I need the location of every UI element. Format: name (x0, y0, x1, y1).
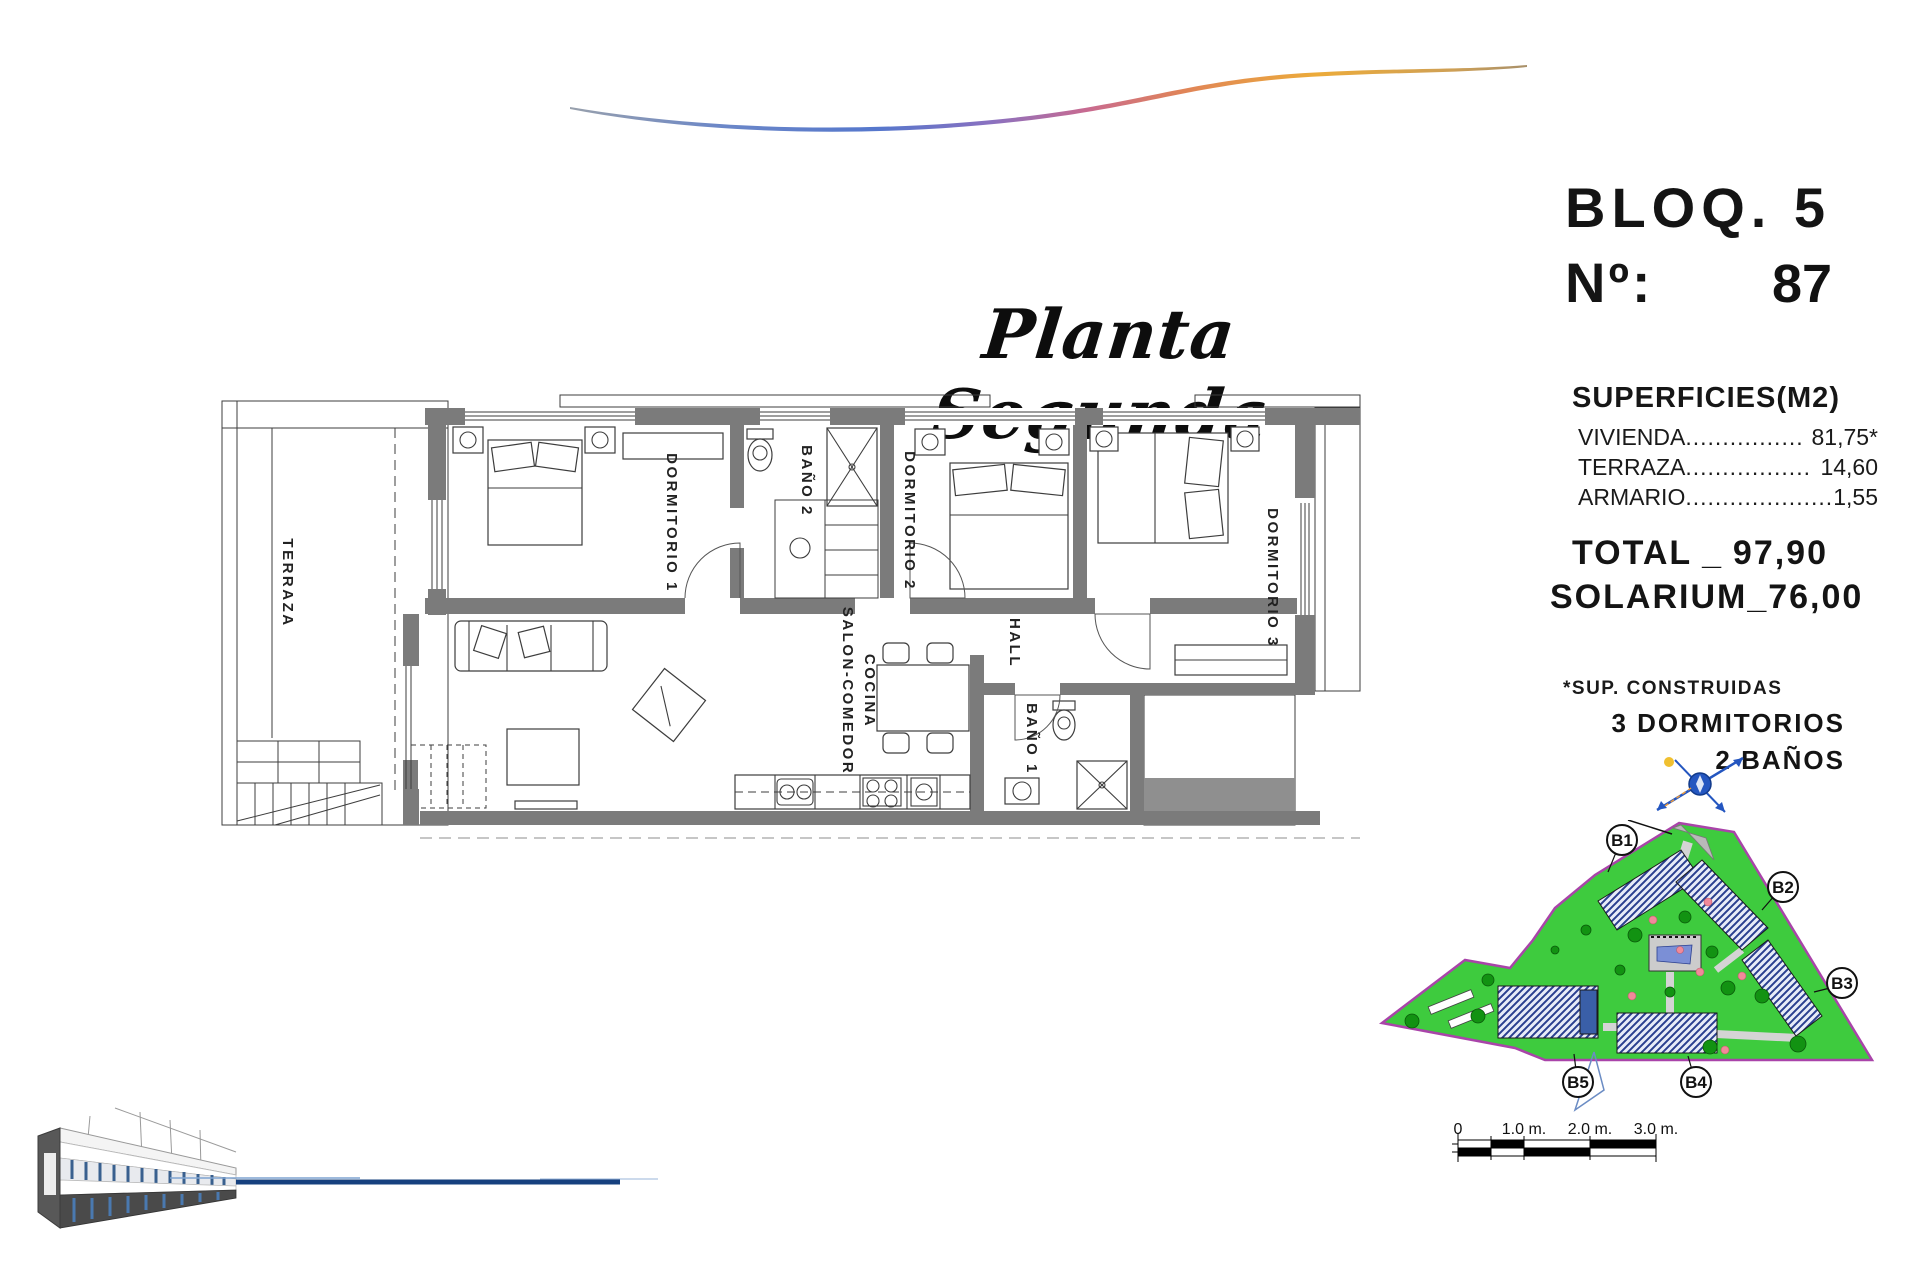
scale-1m: 1.0 m. (1502, 1121, 1546, 1138)
building-b4 (1617, 1013, 1717, 1053)
superficies-row-terraza: TERRAZA ................. 14,60 (1578, 452, 1878, 482)
window-top-bath2 (760, 408, 830, 425)
scale-2m: 2.0 m. (1568, 1121, 1612, 1138)
row-label: VIVIENDA (1578, 422, 1685, 452)
room-label-dormitorio-3: DORMITORIO 3 (1264, 508, 1281, 648)
row-label: TERRAZA (1578, 452, 1685, 482)
plan-sheet: Planta Segunda (0, 0, 1920, 1280)
row-dots: .................... (1685, 482, 1833, 512)
pool-area (1649, 935, 1701, 971)
site-plan: B1 B2 B3 B4 B5 (1370, 820, 1920, 1120)
window-top-dorm1 (465, 408, 635, 425)
bed-dormitorio-1 (453, 427, 723, 545)
window-top-dorm2 (905, 408, 1075, 425)
room-label-dormitorio-2: DORMITORIO 2 (901, 451, 918, 591)
badge-b1: B1 (1611, 831, 1633, 850)
compass-icon (1645, 748, 1755, 823)
top-gradient-swoosh (565, 52, 1535, 136)
floor-plan: TERRAZA DORMITORIO 1 BAÑO 2 DORMITORIO 2… (215, 393, 1365, 863)
total-separator: _ (1702, 532, 1723, 574)
solarium-label: SOLARIUM_ (1550, 576, 1768, 618)
room-label-cocina: COCINA (861, 654, 878, 728)
bed-dormitorio-3 (1090, 427, 1287, 675)
living-room-furniture (455, 621, 705, 809)
bed-dormitorio-2 (915, 429, 1069, 589)
swoosh-ribbon (570, 65, 1527, 132)
row-value: 1,55 (1833, 482, 1878, 512)
window-top-dorm3 (1103, 408, 1265, 425)
kitchen-counter (735, 775, 970, 809)
room-label-bano-2: BAÑO 2 (798, 445, 816, 517)
badge-b3: B3 (1831, 974, 1853, 993)
superficies-row-armario: ARMARIO .................... 1,55 (1578, 482, 1878, 512)
superficies-row-vivienda: VIVIENDA ................ 81,75* (1578, 422, 1878, 452)
total-row: TOTAL _ 97,90 (1572, 532, 1828, 574)
scale-bar-segments (1452, 1134, 1656, 1162)
badge-b5: B5 (1567, 1073, 1589, 1092)
room-label-salon-comedor: SALON-COMEDOR (839, 607, 856, 775)
total-value: 97,90 (1733, 532, 1828, 574)
solarium-value: 76,00 (1768, 576, 1863, 618)
window-left-dorm1 (428, 500, 446, 589)
dining-set (877, 643, 969, 753)
room-label-terraza: TERRAZA (279, 538, 296, 627)
room-label-dormitorio-1: DORMITORIO 1 (663, 453, 680, 593)
row-dots: ................ (1685, 422, 1811, 452)
superficies-table: VIVIENDA ................ 81,75* TERRAZA… (1578, 422, 1878, 512)
row-dots: ................. (1685, 452, 1820, 482)
room-label-hall: HALL (1006, 618, 1023, 668)
superficies-heading: SUPERFICIES(M2) (1572, 382, 1840, 415)
built-surface-footnote: *SUP. CONSTRUIDAS (1563, 678, 1782, 700)
unit-number-label: Nº: (1565, 250, 1654, 315)
block-number: BLOQ. 5 (1565, 175, 1831, 240)
right-terrace-band (1144, 778, 1295, 811)
badge-b4: B4 (1685, 1073, 1707, 1092)
building-b5-solar (1580, 990, 1597, 1034)
building-3d-rendering (20, 1098, 660, 1278)
scale-bar: 0 1.0 m. 2.0 m. 3.0 m. (1448, 1118, 1698, 1173)
end-facade-inset (44, 1153, 56, 1195)
ground-floor (60, 1190, 236, 1228)
row-value: 81,75* (1811, 422, 1878, 452)
row-label: ARMARIO (1578, 482, 1685, 512)
solarium-row: SOLARIUM_ 76,00 (1550, 576, 1842, 618)
unit-number-value: 87 (1772, 253, 1832, 315)
row-value: 14,60 (1820, 452, 1878, 482)
badge-b2: B2 (1772, 878, 1794, 897)
bedrooms-count: 3 DORMITORIOS (1585, 705, 1845, 742)
room-label-bano-1: BAÑO 1 (1023, 703, 1041, 775)
window-right-dorm3 (1297, 503, 1313, 615)
total-label: TOTAL (1572, 532, 1692, 574)
